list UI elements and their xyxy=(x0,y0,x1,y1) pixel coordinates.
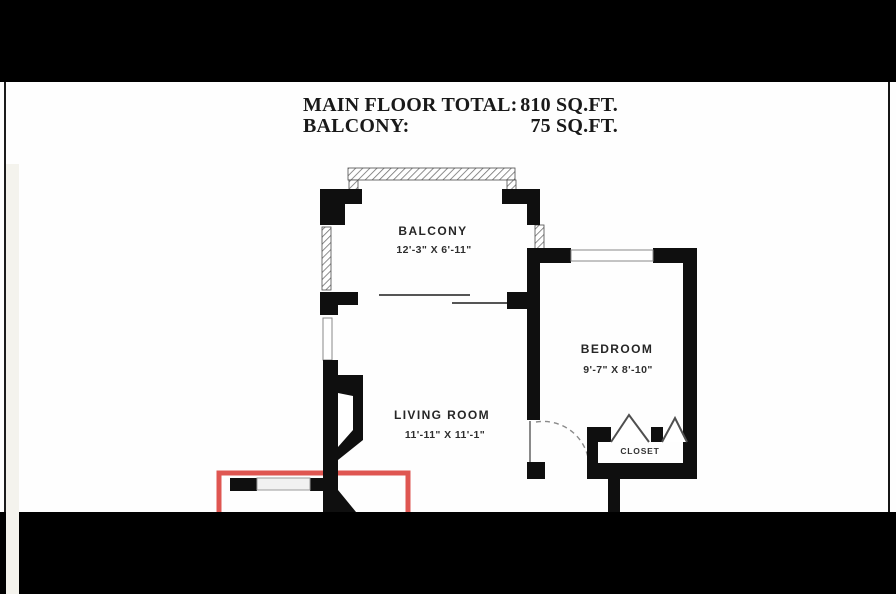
bedroom-label: BEDROOM xyxy=(581,342,653,356)
living-room-label: LIVING ROOM xyxy=(394,408,490,422)
screenshot-root: { "header": { "rows": [ { "label": "MAIN… xyxy=(0,0,896,512)
living-room-window xyxy=(323,318,332,360)
bifold-chevron-left xyxy=(611,415,649,442)
bedroom-dims: 9'-7" X 8'-10" xyxy=(583,364,653,376)
living-room-walls xyxy=(323,318,363,512)
bedroom-window xyxy=(571,250,653,261)
balcony-sliding-door xyxy=(379,292,528,309)
door-arc xyxy=(536,421,589,464)
balcony-dims: 12'-3" X 6'-11" xyxy=(396,244,471,256)
balcony-label: BALCONY xyxy=(398,224,467,238)
closet-label: CLOSET xyxy=(620,446,659,456)
living-room-dims: 11'-11" X 11'-1" xyxy=(405,429,485,441)
lower-room-walls xyxy=(230,478,338,491)
closet-walls xyxy=(587,415,697,512)
bedroom-door-swing xyxy=(530,421,589,464)
lower-window xyxy=(257,478,310,490)
